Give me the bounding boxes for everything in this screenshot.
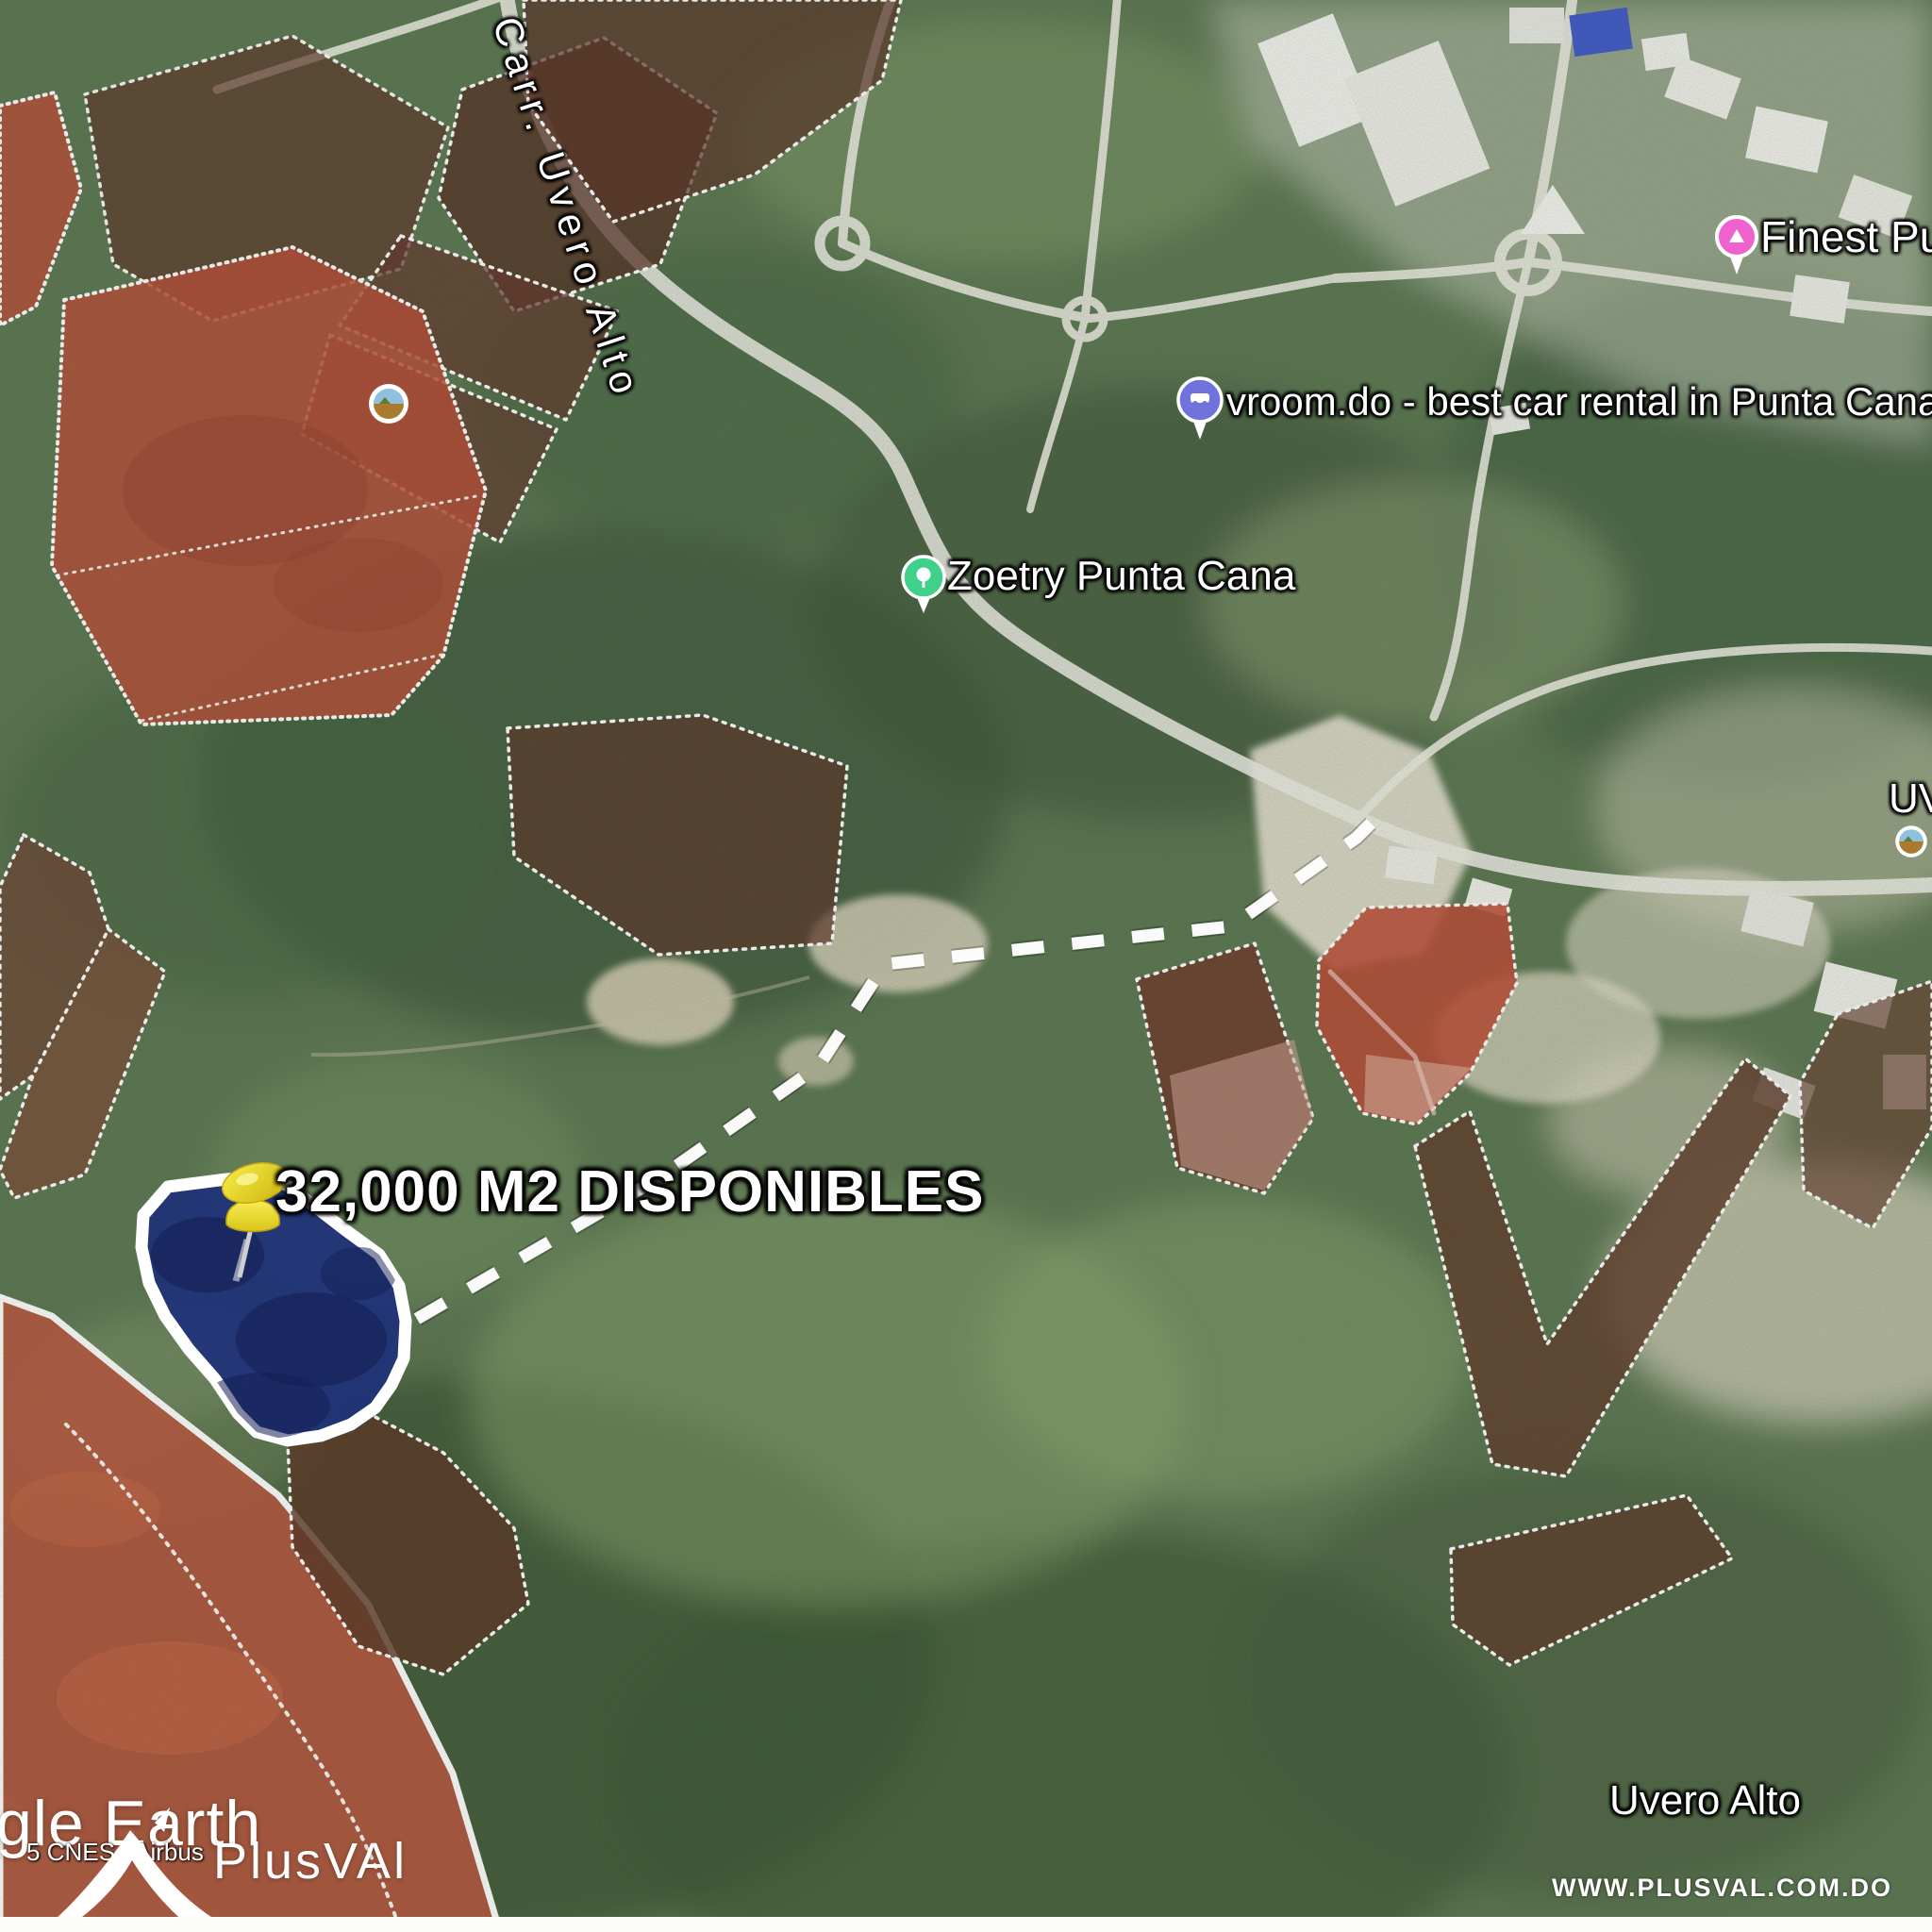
finest-label[interactable]: Finest Pun [1760,211,1932,262]
plusval-website: WWW.PLUSVAL.COM.DO [1552,1874,1892,1903]
plusval-wordmark-text: PlusVAl [213,1833,408,1890]
plusval-website-text: WWW.PLUSVAL.COM.DO [1552,1874,1892,1902]
google-earth-map-view[interactable]: Carr. Uvero Alto Zoetry Punta Cana vroom… [0,0,1932,1932]
uvero-partial-text: UV [1889,775,1932,822]
area-available-annotation: 32,000 M2 DISPONIBLES [275,1158,985,1225]
vroom-label-text: vroom.do - best car rental in Punta Cana [1226,379,1932,424]
satellite-map [0,0,1932,1932]
finest-label-text: Finest Pun [1760,212,1932,261]
zoetry-punta-cana-label[interactable]: Zoetry Punta Cana [947,553,1295,600]
zoetry-label-text: Zoetry Punta Cana [947,553,1295,599]
bottom-white-bar [0,1917,1932,1932]
plusval-mountain-icon [43,1806,228,1932]
uvero-alto-town-label: Uvero Alto [1609,1777,1801,1824]
satellite-grain-texture [0,0,1932,1932]
photo-icon[interactable] [369,384,408,424]
plusval-wordmark: PlusVAl [213,1832,408,1890]
uvero-alto-text: Uvero Alto [1609,1777,1801,1824]
vroom-car-rental-label[interactable]: vroom.do - best car rental in Punta Cana [1226,379,1932,425]
area-available-text: 32,000 M2 DISPONIBLES [275,1159,985,1224]
uvero-partial-label[interactable]: UV [1889,775,1932,823]
photo-icon-uvero[interactable] [1895,825,1927,858]
